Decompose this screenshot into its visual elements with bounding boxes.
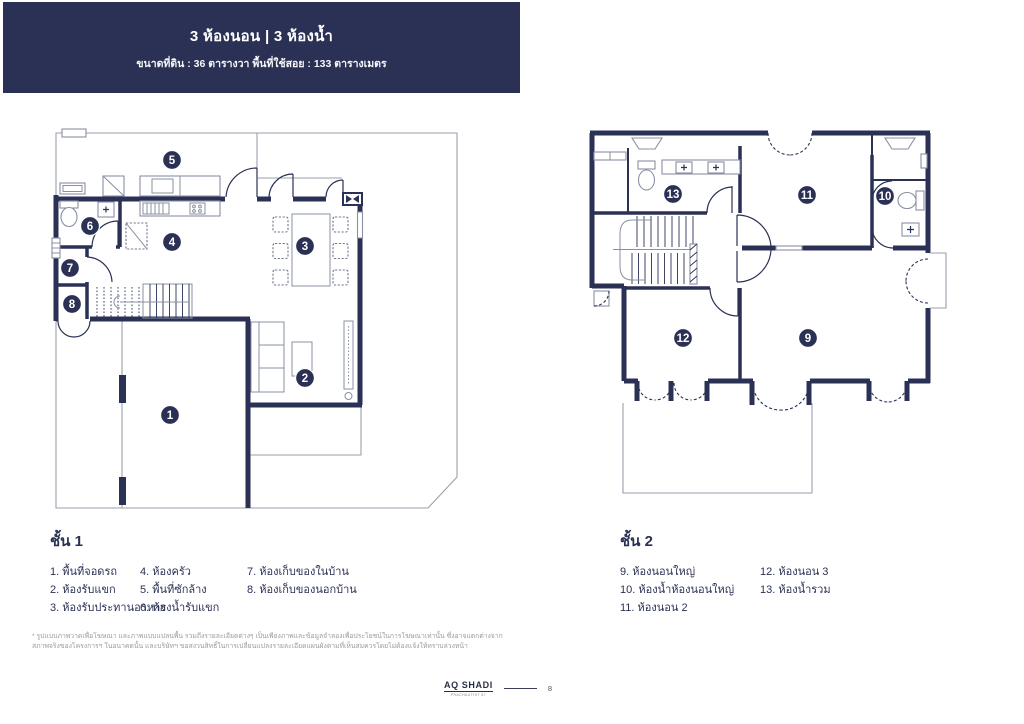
svg-text:6: 6 xyxy=(87,221,93,233)
garage-column xyxy=(119,477,126,505)
sink-icon xyxy=(708,162,724,173)
laundry-area-furniture xyxy=(60,176,220,196)
floor2-legend-title: ชั้น 2 xyxy=(620,529,831,553)
disclaimer-footnote: * รูปแบบภาพวาดเพื่อโฆษณา และภาพแบบแปลนพื… xyxy=(32,632,510,651)
floor1-legend: ชั้น 1 1. พื้นที่จอดรถ 2. ห้องรับแขก 3. … xyxy=(50,529,357,617)
footer-divider xyxy=(504,688,537,689)
legend-item: 1. พื้นที่จอดรถ xyxy=(50,563,140,581)
page-subtitle: ขนาดที่ดิน : 36 ตารางวา พื้นที่ใช้สอย : … xyxy=(136,55,386,72)
brand-name: AQ SHADI xyxy=(444,680,493,692)
floor1-plan-svg: 1 2 3 4 5 6 7 8 xyxy=(40,125,470,520)
floor2-french-doors xyxy=(638,133,928,410)
svg-text:7: 7 xyxy=(67,263,73,275)
room-marker-12: 12 xyxy=(674,329,693,348)
room-marker-6: 6 xyxy=(81,217,100,236)
sofa-icon xyxy=(251,322,284,392)
page-number: 8 xyxy=(548,684,552,693)
vanity-counter-icon xyxy=(662,160,740,174)
room-marker-10: 10 xyxy=(876,187,895,206)
sink-icon xyxy=(902,223,919,236)
floor1-legend-title: ชั้น 1 xyxy=(50,529,357,553)
svg-text:8: 8 xyxy=(69,299,76,311)
room-marker-13: 13 xyxy=(664,185,683,204)
room-marker-4: 4 xyxy=(163,233,182,252)
shared-bathroom-fixtures xyxy=(594,152,740,190)
room-marker-2: 2 xyxy=(296,369,315,388)
header-banner: 3 ห้องนอน | 3 ห้องน้ำ ขนาดที่ดิน : 36 ตา… xyxy=(3,2,520,93)
room-marker-8: 8 xyxy=(63,295,82,314)
living-room-furniture xyxy=(251,321,353,400)
svg-text:3: 3 xyxy=(302,241,308,253)
floor1-stairs-icon xyxy=(97,284,192,318)
toilet-icon xyxy=(638,161,655,190)
svg-text:10: 10 xyxy=(879,191,892,203)
floor2-plan: 9 10 11 12 13 xyxy=(580,118,960,510)
room-marker-11: 11 xyxy=(798,186,817,205)
legend-item: 5. พื้นที่ซักล้าง xyxy=(140,581,247,599)
svg-text:5: 5 xyxy=(169,155,176,167)
svg-text:9: 9 xyxy=(805,333,811,345)
window-icon xyxy=(632,138,662,149)
svg-text:1: 1 xyxy=(167,410,174,422)
room-marker-1: 1 xyxy=(161,406,180,425)
master-bathroom-fixtures xyxy=(898,154,927,236)
window-bowtie-icon xyxy=(343,193,362,205)
garage-column xyxy=(119,375,126,403)
svg-text:13: 13 xyxy=(667,189,680,201)
window-icon xyxy=(885,138,915,149)
svg-text:11: 11 xyxy=(801,190,814,202)
room-marker-5: 5 xyxy=(163,151,182,170)
svg-text:12: 12 xyxy=(677,333,690,345)
legend-item: 6. ห้องน้ำรับแขก xyxy=(140,599,247,617)
brand-tagline: PRACHAUTHIT 87 xyxy=(451,693,486,697)
legend-item: 8. ห้องเก็บของนอกบ้าน xyxy=(247,581,357,599)
floor2-stairs-icon xyxy=(613,216,697,284)
legend-item: 13. ห้องน้ำรวม xyxy=(760,581,831,599)
legend-item: 2. ห้องรับแขก xyxy=(50,581,140,599)
svg-text:2: 2 xyxy=(302,373,308,385)
floor1-plan: 1 2 3 4 5 6 7 8 xyxy=(40,125,470,520)
legend-item: 7. ห้องเก็บของในบ้าน xyxy=(247,563,357,581)
legend-item: 11. ห้องนอน 2 xyxy=(620,599,760,617)
sink-icon xyxy=(98,202,114,217)
room-marker-9: 9 xyxy=(799,329,818,348)
floor2-plan-svg: 9 10 11 12 13 xyxy=(580,118,960,510)
legend-item: 9. ห้องนอนใหญ่ xyxy=(620,563,760,581)
shelf-icon xyxy=(921,154,927,168)
legend-item: 12. ห้องนอน 3 xyxy=(760,563,831,581)
room-marker-3: 3 xyxy=(296,237,315,256)
page-title: 3 ห้องนอน | 3 ห้องน้ำ xyxy=(190,24,333,48)
toilet-icon xyxy=(60,201,78,227)
room-marker-7: 7 xyxy=(61,259,80,278)
page-footer: AQ SHADI PRACHAUTHIT 87 8 xyxy=(444,680,552,697)
svg-text:4: 4 xyxy=(169,237,176,249)
brand-logo: AQ SHADI PRACHAUTHIT 87 xyxy=(444,680,493,697)
floor1-walls xyxy=(56,195,362,508)
legend-item: 3. ห้องรับประทานอาหาร xyxy=(50,599,140,617)
floor2-legend: ชั้น 2 9. ห้องนอนใหญ่ 10. ห้องน้ำห้องนอน… xyxy=(620,529,831,617)
tv-cabinet-icon xyxy=(344,321,353,400)
window-icon xyxy=(358,212,363,238)
legend-item: 4. ห้องครัว xyxy=(140,563,247,581)
toilet-icon xyxy=(898,191,924,210)
laundry-tub-icon xyxy=(60,183,85,194)
sink-icon xyxy=(676,162,692,173)
legend-item: 10. ห้องน้ำห้องนอนใหญ่ xyxy=(620,581,760,599)
